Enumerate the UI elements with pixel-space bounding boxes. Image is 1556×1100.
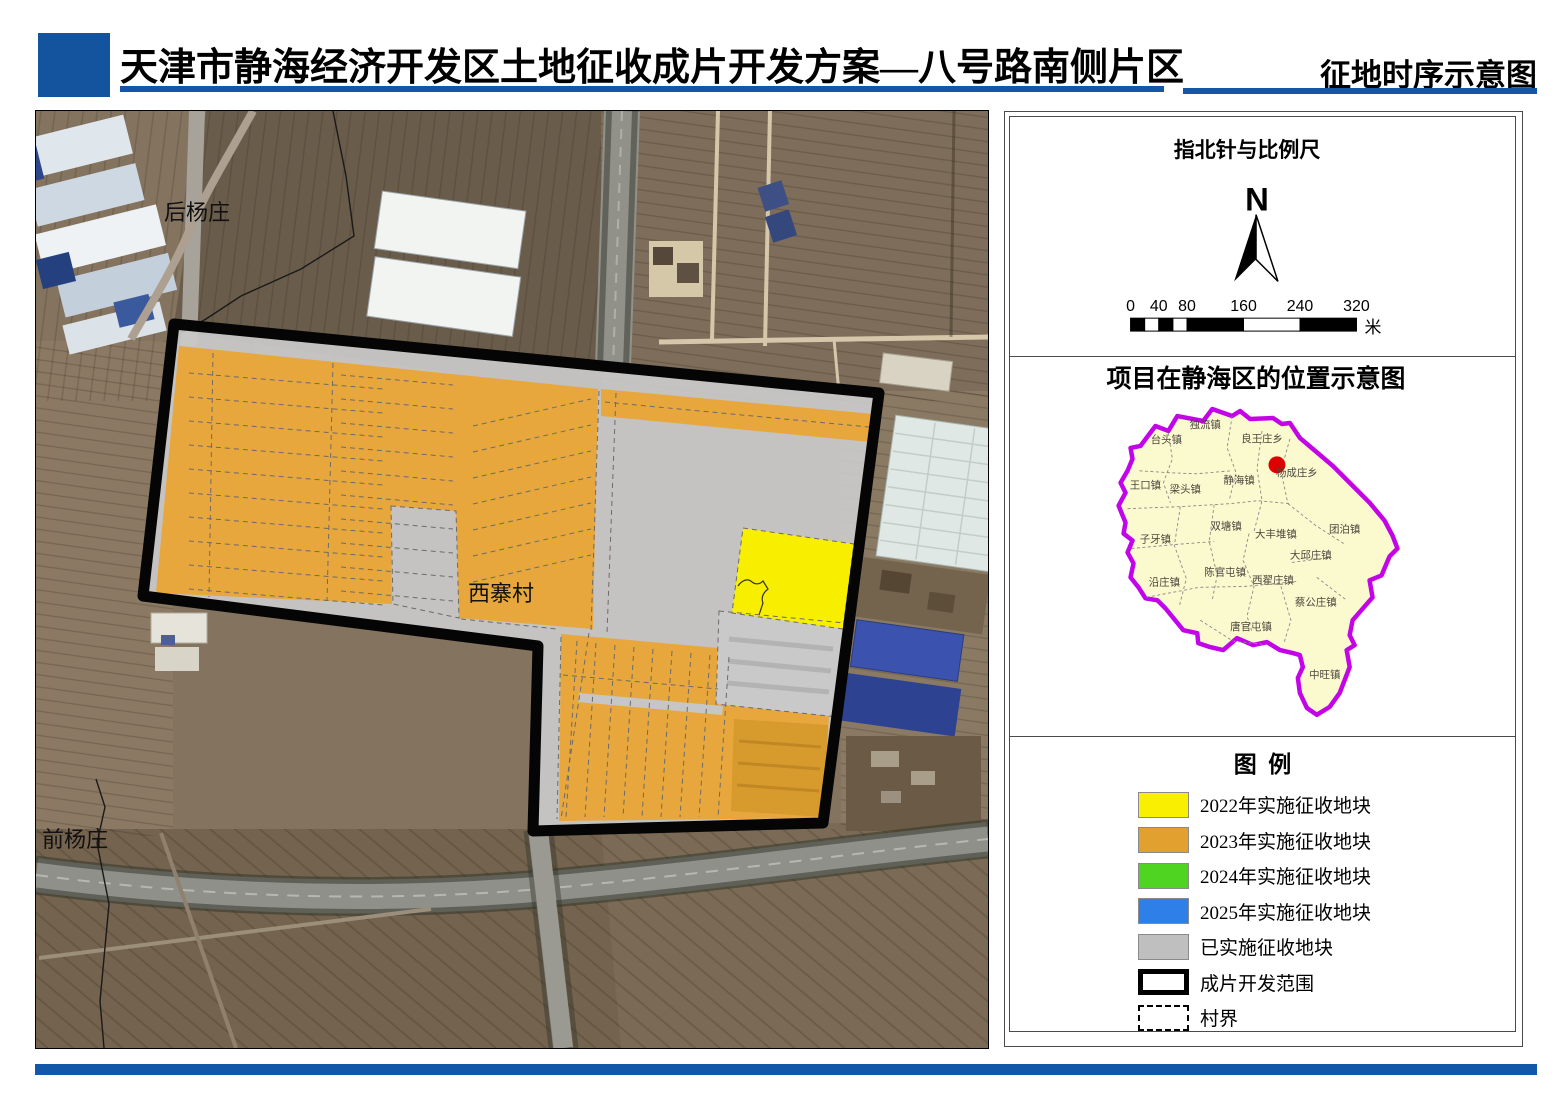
legend-swatch-dashed-outline — [1138, 1005, 1189, 1031]
legend-label: 成片开发范围 — [1200, 969, 1314, 996]
legend-row: 村界 — [1138, 1000, 1507, 1036]
legend-swatch-fill — [1138, 863, 1189, 889]
legend-label: 2024年实施征收地块 — [1200, 862, 1371, 889]
brand-square — [38, 33, 110, 97]
legend-swatch-thick-outline — [1138, 969, 1189, 995]
town-label: 西翟庄镇 — [1252, 573, 1294, 586]
legend-row: 已实施征收地块 — [1138, 929, 1507, 965]
scale-tick-label: 320 — [1343, 298, 1370, 315]
town-label: 良王庄乡 — [1241, 432, 1283, 445]
scale-tick-label: 160 — [1230, 298, 1257, 315]
town-label: 双塘镇 — [1210, 520, 1241, 533]
town-label: 沿庄镇 — [1149, 575, 1180, 588]
side-panel: 指北针与比例尺 N 04080160240320米 项目在静海区的位置示意图 — [1004, 111, 1523, 1047]
scale-tick-label: 0 — [1126, 298, 1135, 315]
scale-bar-segment — [1300, 318, 1356, 331]
village-label: 后杨庄 — [164, 200, 230, 225]
location-map-svg: 项目在静海区的位置示意图 — [1010, 357, 1515, 736]
white-cluster-left — [151, 613, 207, 671]
scale-bar-segment — [1187, 318, 1243, 331]
compass-title: 指北针与比例尺 — [1174, 138, 1320, 162]
legend-rows: 2022年实施征收地块2023年实施征收地块2024年实施征收地块2025年实施… — [1138, 787, 1507, 1036]
scale-bar-segment — [1131, 318, 1145, 331]
page-title: 天津市静海经济开发区土地征收成片开发方案—八号路南侧片区 — [120, 36, 1180, 91]
legend-label: 2023年实施征收地块 — [1200, 827, 1371, 854]
legend-row: 2023年实施征收地块 — [1138, 823, 1507, 859]
north-letter: N — [1245, 181, 1269, 218]
town-label: 梁头镇 — [1170, 483, 1201, 496]
compass-scale-box: 指北针与比例尺 N 04080160240320米 — [1009, 116, 1516, 357]
town-label: 团泊镇 — [1329, 523, 1360, 536]
jinghai-district-shape — [1119, 409, 1398, 715]
legend-swatch-fill — [1138, 792, 1189, 818]
footer-bar — [35, 1064, 1537, 1075]
town-label: 大邱庄镇 — [1290, 548, 1332, 561]
highway-north — [600, 111, 635, 367]
scale-bar-segment — [1159, 318, 1173, 331]
scale-unit-label: 米 — [1364, 318, 1381, 337]
location-map-title: 项目在静海区的位置示意图 — [1107, 364, 1406, 393]
north-arrow-icon — [1234, 215, 1278, 282]
scale-tick-label: 80 — [1178, 298, 1196, 315]
main-map-svg: 后杨庄西寨村前杨庄 — [36, 111, 988, 1048]
town-label: 台头镇 — [1151, 433, 1182, 446]
town-label: 唐官屯镇 — [1230, 620, 1272, 633]
town-label: 杨成庄乡 — [1276, 466, 1318, 479]
compass-svg: 指北针与比例尺 N 04080160240320米 — [1010, 117, 1515, 356]
page: 天津市静海经济开发区土地征收成片开发方案—八号路南侧片区 征地时序示意图 — [0, 0, 1556, 1100]
legend-row: 2024年实施征收地块 — [1138, 858, 1507, 894]
legend-title: 图 例 — [1010, 745, 1515, 779]
scale-bar: 04080160240320米 — [1126, 298, 1381, 337]
legend-swatch-fill — [1138, 827, 1189, 853]
scale-tick-label: 40 — [1150, 298, 1168, 315]
town-label: 大丰堆镇 — [1255, 528, 1297, 541]
town-label: 子牙镇 — [1140, 533, 1171, 546]
village-label: 西寨村 — [468, 581, 534, 606]
legend-row: 2025年实施征收地块 — [1138, 894, 1507, 930]
title-underline — [120, 86, 1164, 92]
legend-swatch-fill — [1138, 934, 1189, 960]
town-label: 独流镇 — [1190, 418, 1221, 431]
town-label: 中旺镇 — [1309, 668, 1340, 681]
scale-bar-segment — [1145, 318, 1159, 331]
town-label: 陈官屯镇 — [1204, 565, 1246, 578]
scale-bar-segment — [1173, 318, 1187, 331]
town-label: 蔡公庄镇 — [1295, 595, 1337, 608]
legend-swatch-fill — [1138, 898, 1189, 924]
legend-label: 2022年实施征收地块 — [1200, 791, 1371, 818]
legend-label: 2025年实施征收地块 — [1200, 898, 1371, 925]
legend-row: 2022年实施征收地块 — [1138, 787, 1507, 823]
legend-row: 成片开发范围 — [1138, 965, 1507, 1001]
legend-label: 已实施征收地块 — [1200, 933, 1333, 960]
scale-bar-segment — [1244, 318, 1300, 331]
legend-label: 村界 — [1200, 1004, 1238, 1031]
scale-tick-label: 240 — [1287, 298, 1314, 315]
town-label: 静海镇 — [1223, 474, 1254, 487]
village-label: 前杨庄 — [42, 827, 108, 852]
legend-box: 图 例 2022年实施征收地块2023年实施征收地块2024年实施征收地块202… — [1009, 736, 1516, 1032]
town-label: 王口镇 — [1130, 479, 1161, 492]
main-map: 后杨庄西寨村前杨庄 — [35, 110, 989, 1049]
location-map-box: 项目在静海区的位置示意图 — [1009, 356, 1516, 737]
subtitle-underline — [1183, 88, 1537, 94]
